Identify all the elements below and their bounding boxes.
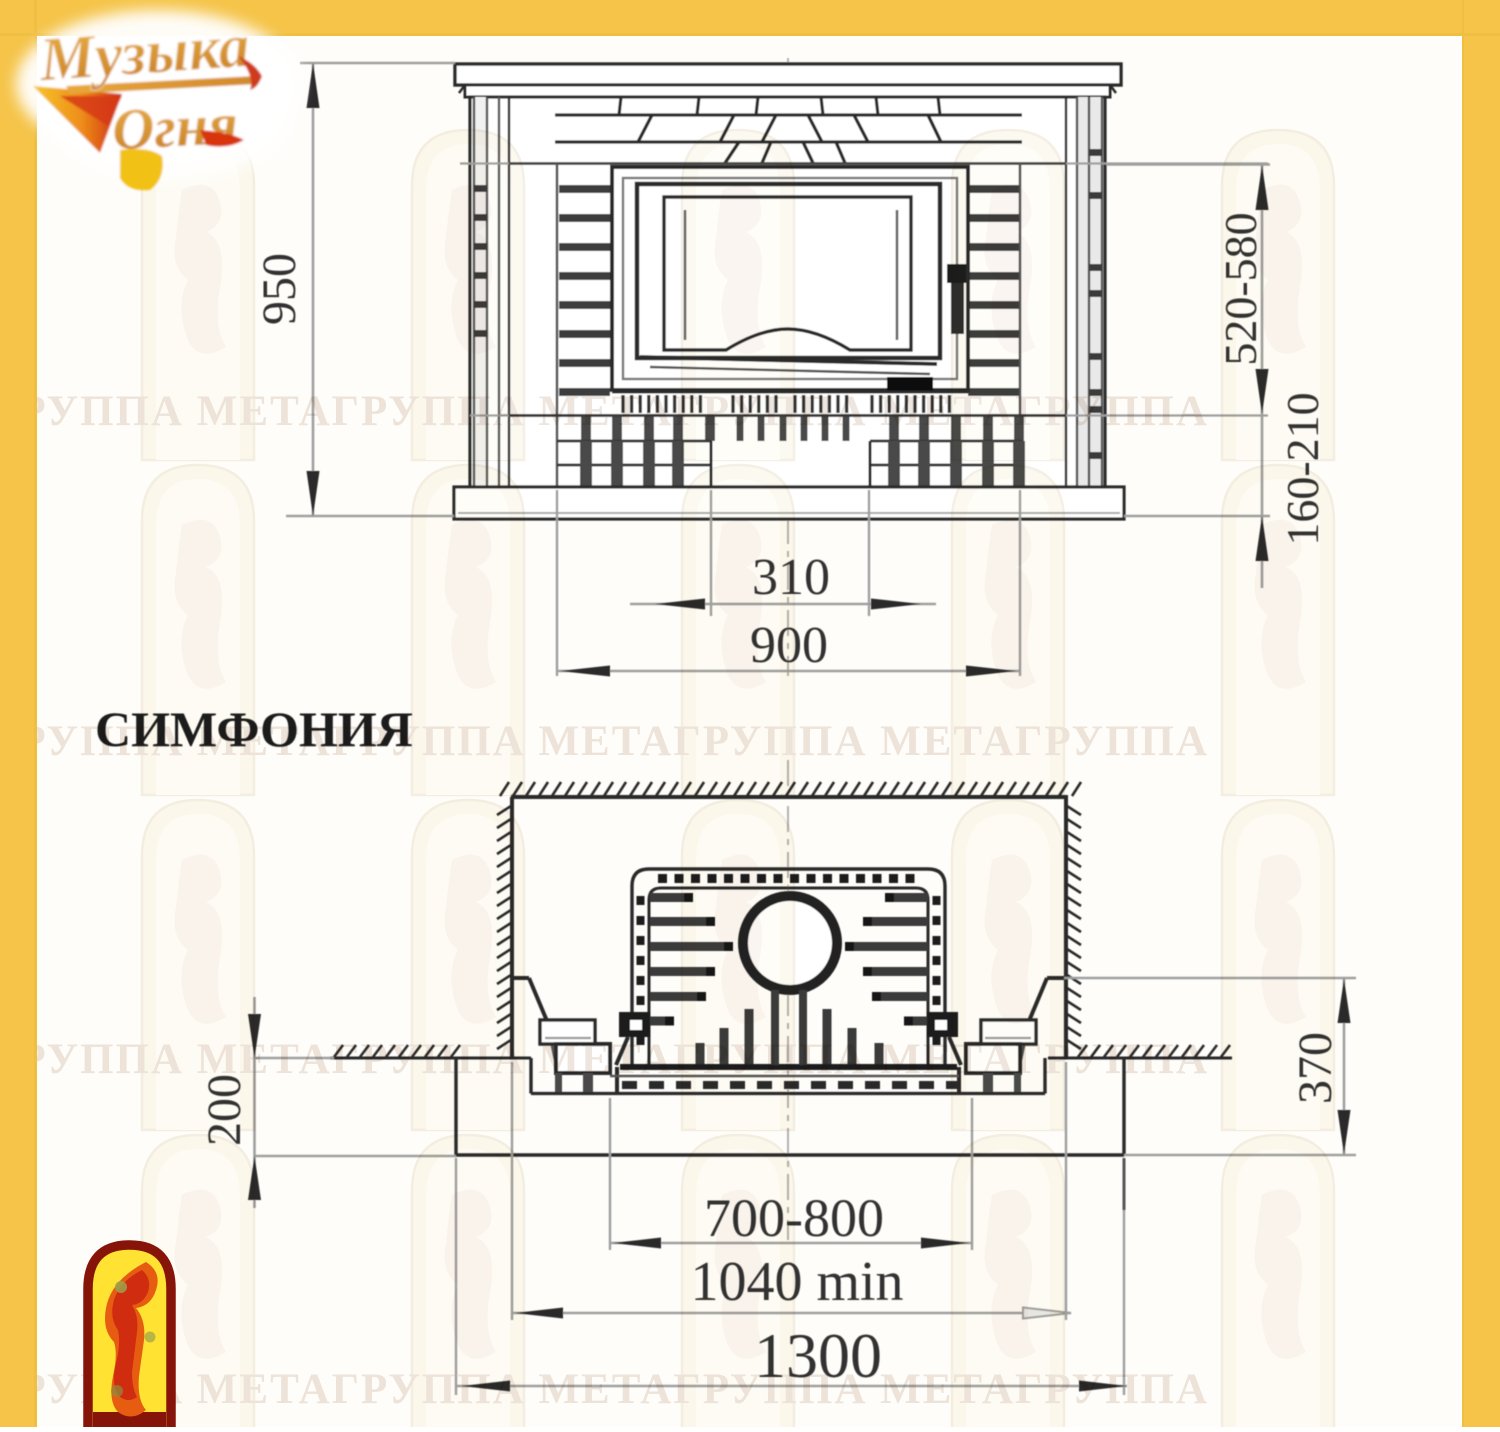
svg-text:ГРУППА МЕТАГРУППА МЕТАГРУППА М: ГРУППА МЕТАГРУППА МЕТАГРУППА МЕТАГРУППА xyxy=(0,1366,1209,1413)
svg-text:ГРУППА МЕТАГРУППА МЕТАГРУППА М: ГРУППА МЕТАГРУППА МЕТАГРУППА МЕТАГРУППА xyxy=(0,388,1209,435)
svg-text:ГРУППА МЕТАГРУППА МЕТАГРУППА М: ГРУППА МЕТАГРУППА МЕТАГРУППА МЕТАГРУППА xyxy=(0,718,1209,765)
svg-text:ГРУППА МЕТАГРУППА МЕТАГРУППА М: ГРУППА МЕТАГРУППА МЕТАГРУППА МЕТАГРУППА xyxy=(0,1036,1209,1083)
svg-text:950: 950 xyxy=(253,253,306,325)
